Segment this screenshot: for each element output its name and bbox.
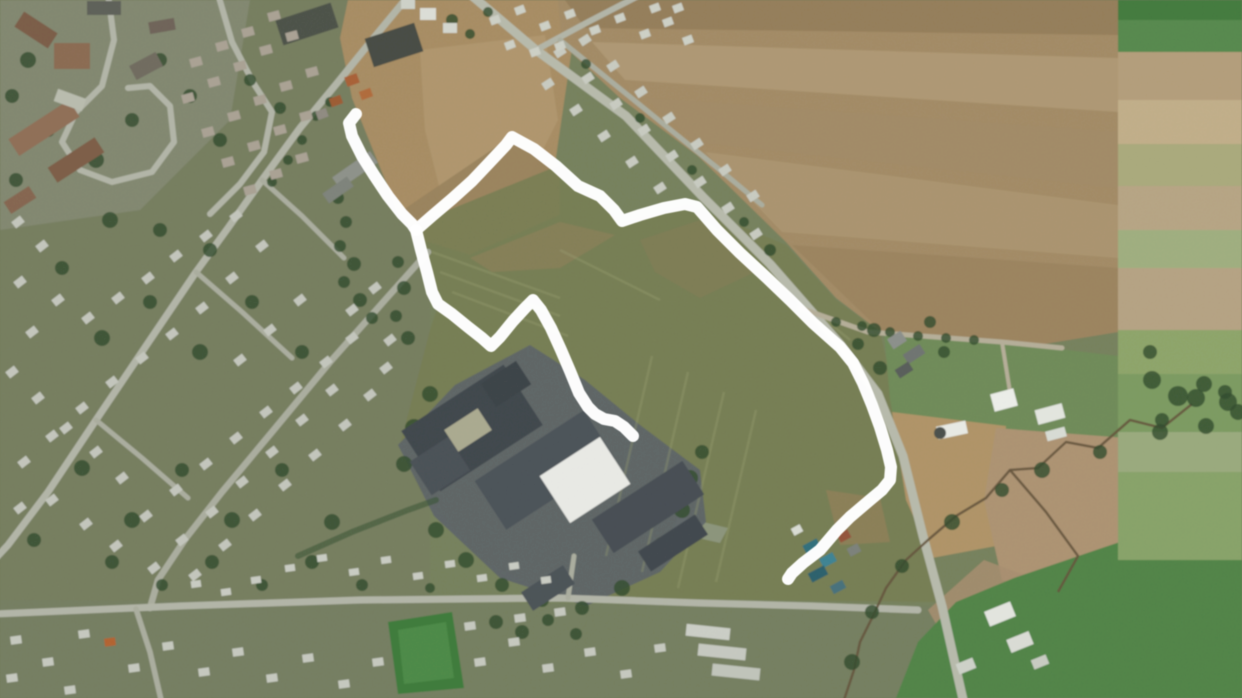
noise-texture xyxy=(0,0,1242,698)
satellite-map xyxy=(0,0,1242,698)
aerial-imagery-layer xyxy=(0,0,1242,698)
satellite-map-viewport xyxy=(0,0,1242,698)
